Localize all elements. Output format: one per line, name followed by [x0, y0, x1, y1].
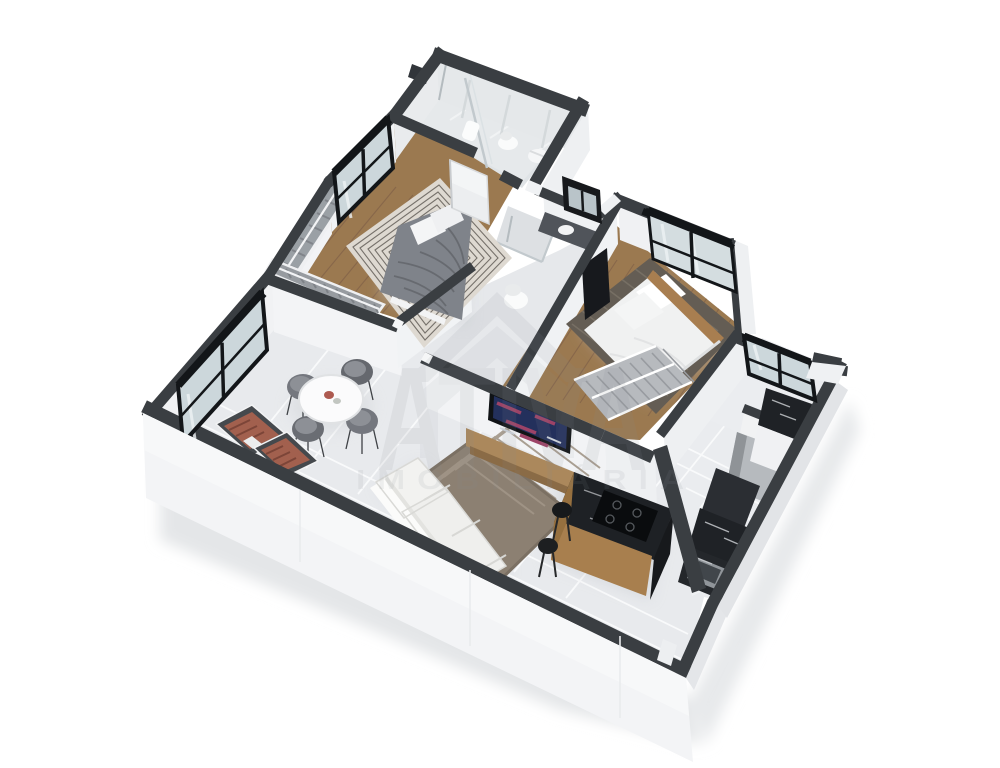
svg-text:IMOBILIÁRIA: IMOBILIÁRIA [356, 464, 696, 495]
